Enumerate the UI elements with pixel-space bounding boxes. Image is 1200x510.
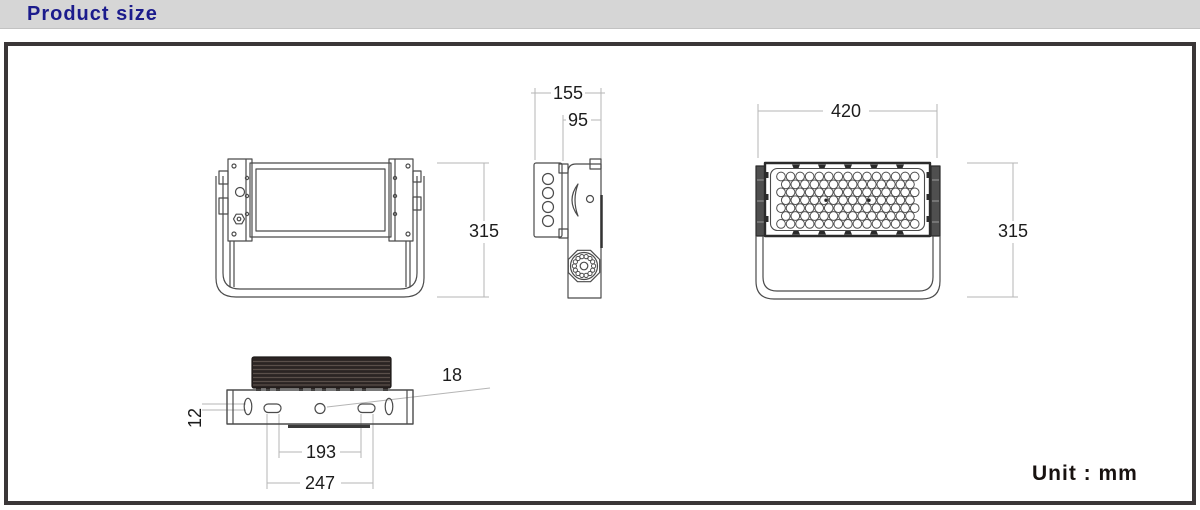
- lens-edge-below: [288, 425, 370, 428]
- side-screw-hole: [587, 196, 594, 203]
- side-knob-center: [580, 262, 588, 270]
- dim-side-body-depth: 95: [568, 110, 588, 130]
- back-bracket-arms: [230, 241, 410, 287]
- technical-drawing-canvas: 155 95 420 315 315 12 18 193 247: [0, 0, 1200, 510]
- dim-front-width: 420: [831, 101, 861, 121]
- back-screws: [232, 164, 410, 236]
- dimension-labels: 155 95 420 315 315 12 18 193 247: [185, 83, 1028, 493]
- front-view-drawing: [756, 163, 940, 299]
- dim-side-total-depth: 155: [553, 83, 583, 103]
- bottom-view-drawing: [227, 357, 413, 428]
- front-bracket-inner: [763, 236, 933, 291]
- side-hinge-top: [559, 164, 568, 173]
- dim-bottom-span-inner: 193: [306, 442, 336, 462]
- side-arc-slot: [572, 184, 578, 216]
- unit-label: Unit : mm: [1032, 462, 1192, 486]
- heatsink-fins: [253, 362, 390, 386]
- dim-bottom-slot-height: 12: [185, 408, 205, 428]
- back-endplate-left: [228, 159, 252, 241]
- mount-slot-left: [264, 404, 281, 413]
- front-bracket-outer: [756, 236, 940, 299]
- dim-bottom-span-outer: 247: [305, 473, 335, 493]
- side-mount-plate: [534, 163, 562, 237]
- mount-oval-left: [244, 398, 252, 414]
- dim-bottom-hole-dia: 18: [442, 365, 462, 385]
- mount-oval-right: [385, 398, 393, 414]
- mount-center-hole: [315, 404, 325, 414]
- back-window: [256, 169, 385, 231]
- back-pivot-hole: [236, 188, 245, 197]
- dim-back-height: 315: [469, 221, 499, 241]
- led-lens-grid: [777, 172, 919, 228]
- back-housing: [250, 163, 391, 237]
- knob-ring: [572, 255, 595, 278]
- back-endplate-right: [389, 159, 413, 241]
- side-view-drawing: [534, 159, 602, 298]
- dim-front-height: 315: [998, 221, 1028, 241]
- mount-slot-right: [358, 404, 375, 413]
- back-hex-bolt: [234, 214, 245, 224]
- side-knob-octagon: [568, 250, 599, 281]
- back-view-drawing: [216, 159, 424, 297]
